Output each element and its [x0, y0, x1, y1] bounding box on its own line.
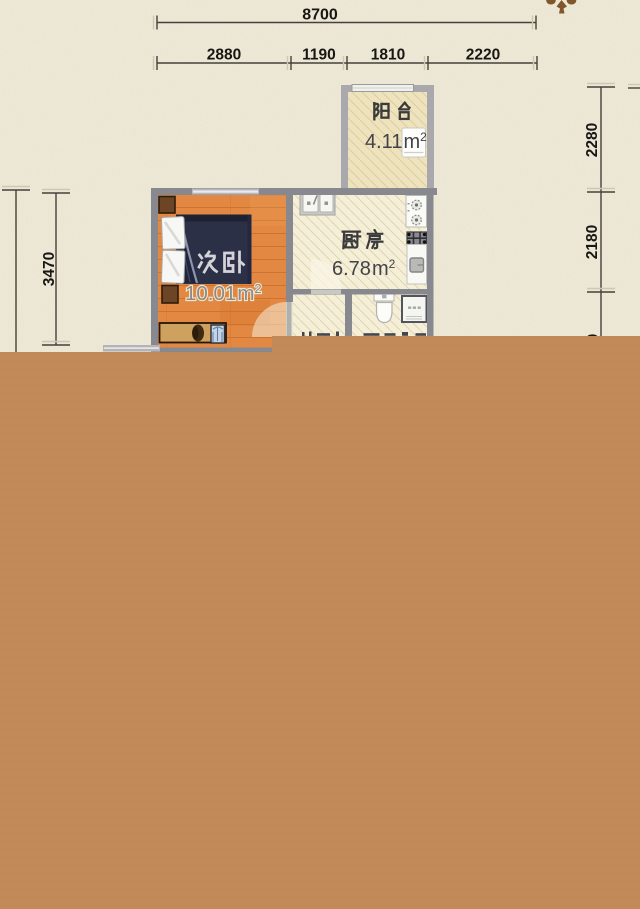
svg-text:8700: 8700	[302, 7, 338, 24]
svg-text:4.11m2: 4.11m2	[365, 130, 427, 153]
svg-text:2180: 2180	[584, 225, 601, 259]
svg-text:6.78m2: 6.78m2	[332, 257, 396, 280]
svg-text:1190: 1190	[302, 47, 336, 64]
svg-text:2880: 2880	[207, 47, 241, 64]
svg-text:3470: 3470	[41, 252, 58, 286]
svg-text:10.01m2: 10.01m2	[185, 281, 262, 305]
svg-text:2280: 2280	[584, 123, 601, 157]
svg-text:1810: 1810	[371, 47, 405, 64]
svg-text:2220: 2220	[466, 47, 500, 64]
